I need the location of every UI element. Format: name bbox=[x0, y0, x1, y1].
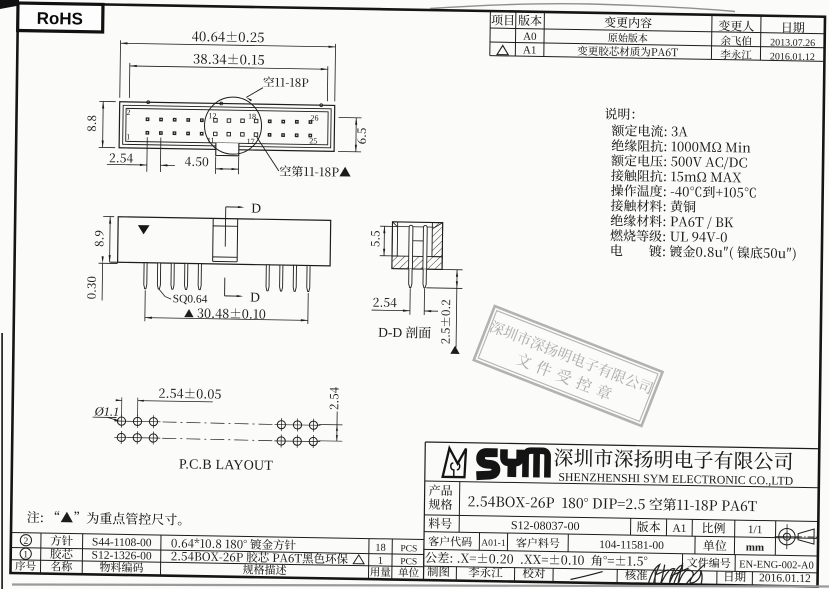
svg-text:D: D bbox=[251, 201, 261, 216]
svg-text:S12-1326-00: S12-1326-00 bbox=[92, 550, 152, 563]
svg-text:2016.01.12: 2016.01.12 bbox=[770, 51, 815, 63]
svg-text:S44-1108-00: S44-1108-00 bbox=[92, 536, 152, 549]
svg-text:2013.07.26: 2013.07.26 bbox=[770, 37, 815, 49]
svg-text:A0: A0 bbox=[523, 31, 537, 43]
svg-text:SQ0.64: SQ0.64 bbox=[173, 293, 208, 306]
svg-text:P.C.B LAYOUT: P.C.B LAYOUT bbox=[179, 457, 274, 474]
svg-text:D: D bbox=[250, 290, 260, 305]
svg-text:EN-ENG-002-A0: EN-ENG-002-A0 bbox=[739, 559, 814, 571]
svg-text:18: 18 bbox=[375, 543, 386, 554]
svg-text:1: 1 bbox=[126, 132, 130, 141]
svg-text:2016.01.12: 2016.01.12 bbox=[759, 572, 811, 585]
svg-text:PCS: PCS bbox=[400, 557, 417, 567]
svg-text:PCS: PCS bbox=[400, 544, 417, 554]
svg-text:104-11581-00: 104-11581-00 bbox=[599, 539, 664, 552]
svg-text:26: 26 bbox=[310, 113, 318, 122]
svg-text:12: 12 bbox=[208, 111, 216, 120]
svg-text:1: 1 bbox=[378, 556, 383, 567]
svg-text:1: 1 bbox=[23, 550, 28, 560]
svg-text:18: 18 bbox=[248, 112, 256, 121]
svg-text:25: 25 bbox=[309, 136, 317, 145]
svg-text:A01-1: A01-1 bbox=[481, 538, 506, 548]
svg-text:RoHS: RoHS bbox=[37, 9, 84, 29]
svg-text:S12-08037-00: S12-08037-00 bbox=[511, 518, 580, 533]
svg-text:A1: A1 bbox=[523, 44, 537, 56]
svg-text:A1: A1 bbox=[672, 523, 686, 535]
svg-text:17: 17 bbox=[247, 137, 255, 146]
svg-text:Ø1.1: Ø1.1 bbox=[94, 404, 120, 418]
svg-text:mm: mm bbox=[746, 541, 764, 553]
svg-text:2: 2 bbox=[127, 108, 131, 117]
svg-text:1/1: 1/1 bbox=[748, 524, 763, 536]
svg-text:2: 2 bbox=[23, 537, 28, 547]
svg-text:D-D: D-D bbox=[378, 325, 402, 340]
